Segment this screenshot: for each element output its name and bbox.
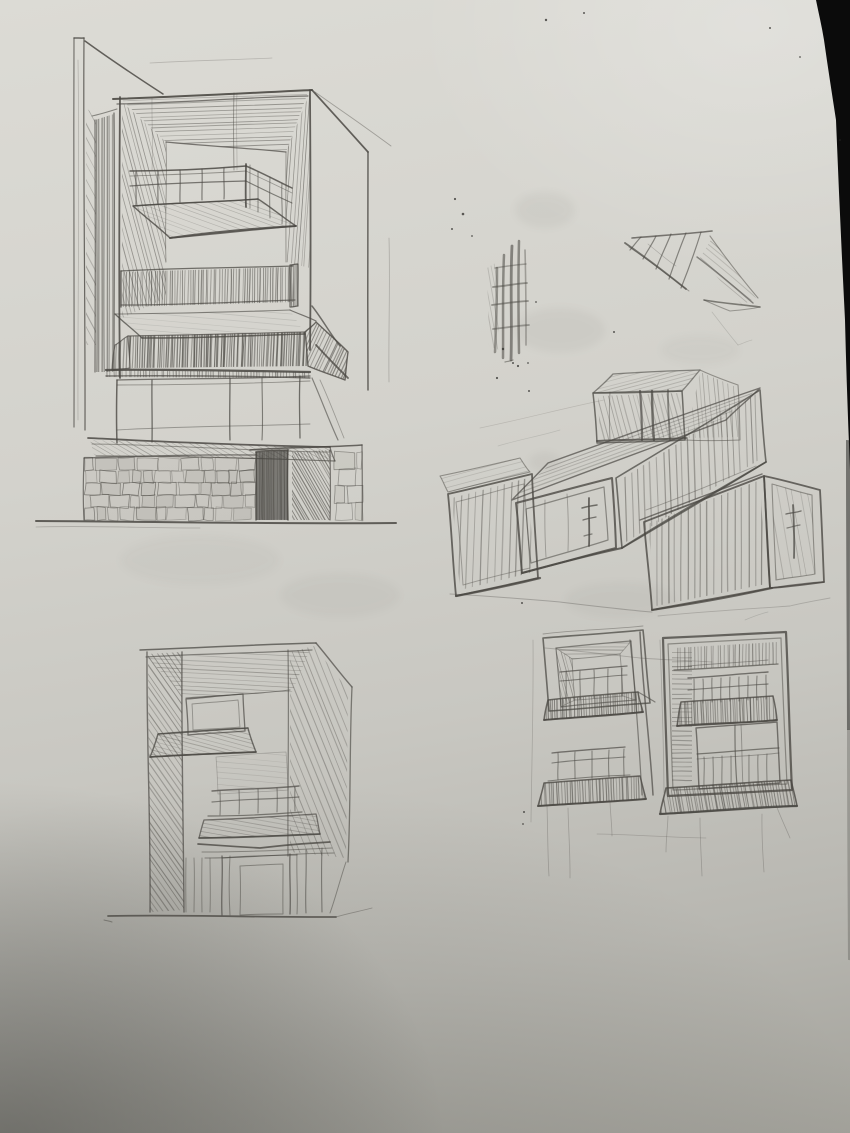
- sketchbook-page-photo: [0, 0, 850, 1133]
- canopy-doodle: [625, 231, 769, 345]
- pencil-sketch-canvas: [0, 0, 850, 1133]
- facade-study-small: [27, 634, 404, 929]
- hatch-doodle: [473, 241, 529, 367]
- window-balcony-studies: [531, 612, 797, 878]
- facade-study-large: [0, 38, 396, 562]
